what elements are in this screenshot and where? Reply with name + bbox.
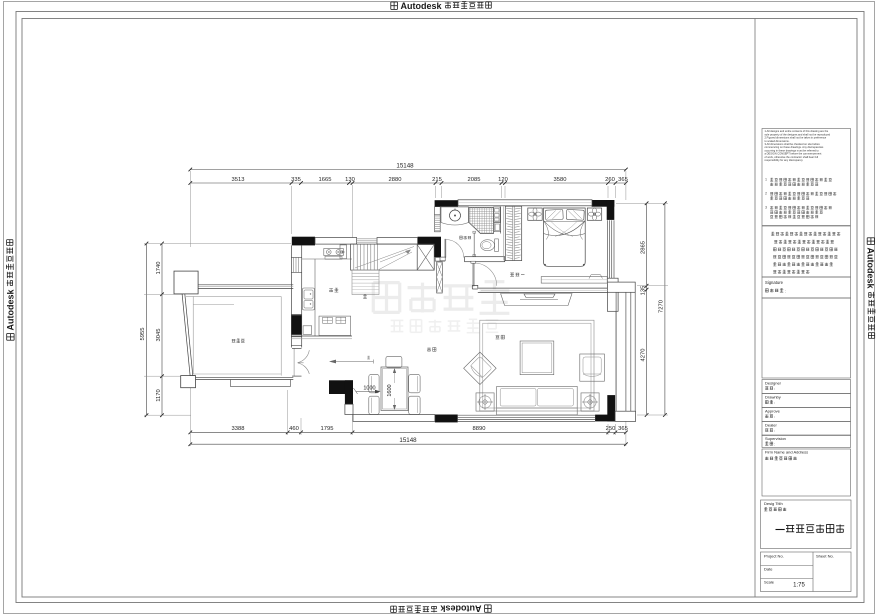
svg-text:260: 260 [605,177,615,183]
svg-text:2: 2 [765,192,767,196]
svg-text:Signature: Signature [765,280,784,285]
svg-text::: : [774,441,775,446]
svg-text:Autodesk: Autodesk [6,289,16,331]
svg-text:Date: Date [764,567,773,572]
svg-text:Dealer: Dealer [765,423,777,428]
svg-text:3513: 3513 [232,177,245,183]
svg-text:8890: 8890 [473,426,486,432]
svg-text:335: 335 [291,177,301,183]
svg-text:15148: 15148 [399,437,417,444]
svg-text:Autodesk: Autodesk [440,603,482,613]
svg-text:1:75: 1:75 [793,583,805,589]
svg-text:120: 120 [498,177,508,183]
svg-text::: : [774,400,775,405]
svg-text:Scale: Scale [764,580,775,585]
svg-text:1740: 1740 [156,262,162,275]
svg-text:Autodesk: Autodesk [401,1,443,11]
svg-text:Approve: Approve [765,409,781,414]
svg-text:250: 250 [606,426,616,432]
svg-text:Autodesk: Autodesk [866,248,876,290]
svg-text:1665: 1665 [319,177,332,183]
svg-text:1170: 1170 [156,389,162,401]
svg-text:7270: 7270 [659,300,665,313]
svg-text:2865: 2865 [640,241,646,254]
svg-text:Project No.: Project No. [764,554,784,559]
svg-text:1: 1 [765,178,767,182]
svg-text:15148: 15148 [396,162,414,169]
svg-text:1795: 1795 [321,426,334,432]
svg-text:Sheet No.: Sheet No. [816,554,834,559]
svg-text:responsibility for any discrep: responsibility for any discrepancy. [765,158,804,162]
svg-text:135: 135 [640,286,646,296]
svg-text:1600: 1600 [387,384,393,396]
svg-text:365: 365 [618,177,628,183]
svg-text:Supervision: Supervision [765,436,786,441]
svg-text:Drawnby: Drawnby [765,395,781,400]
svg-text:460: 460 [289,426,299,432]
svg-text:365: 365 [618,426,628,432]
svg-text:Desig Titlh: Desig Titlh [764,501,783,506]
svg-text::: : [785,288,786,293]
svg-text:3580: 3580 [554,177,567,183]
svg-text:5955: 5955 [140,328,146,341]
svg-text:2880: 2880 [389,177,402,183]
svg-text:130: 130 [345,177,355,183]
svg-text:215: 215 [432,177,442,183]
svg-text:3: 3 [765,206,767,210]
svg-text:4270: 4270 [640,349,646,362]
svg-text::: : [774,414,775,419]
svg-text:3388: 3388 [232,426,245,432]
svg-text::: : [774,428,775,433]
svg-text:Firm Name and Address: Firm Name and Address [765,450,808,455]
svg-text:2085: 2085 [468,177,481,183]
svg-text:1000: 1000 [363,386,375,392]
svg-text::: : [774,386,775,391]
svg-text:3045: 3045 [156,329,162,342]
